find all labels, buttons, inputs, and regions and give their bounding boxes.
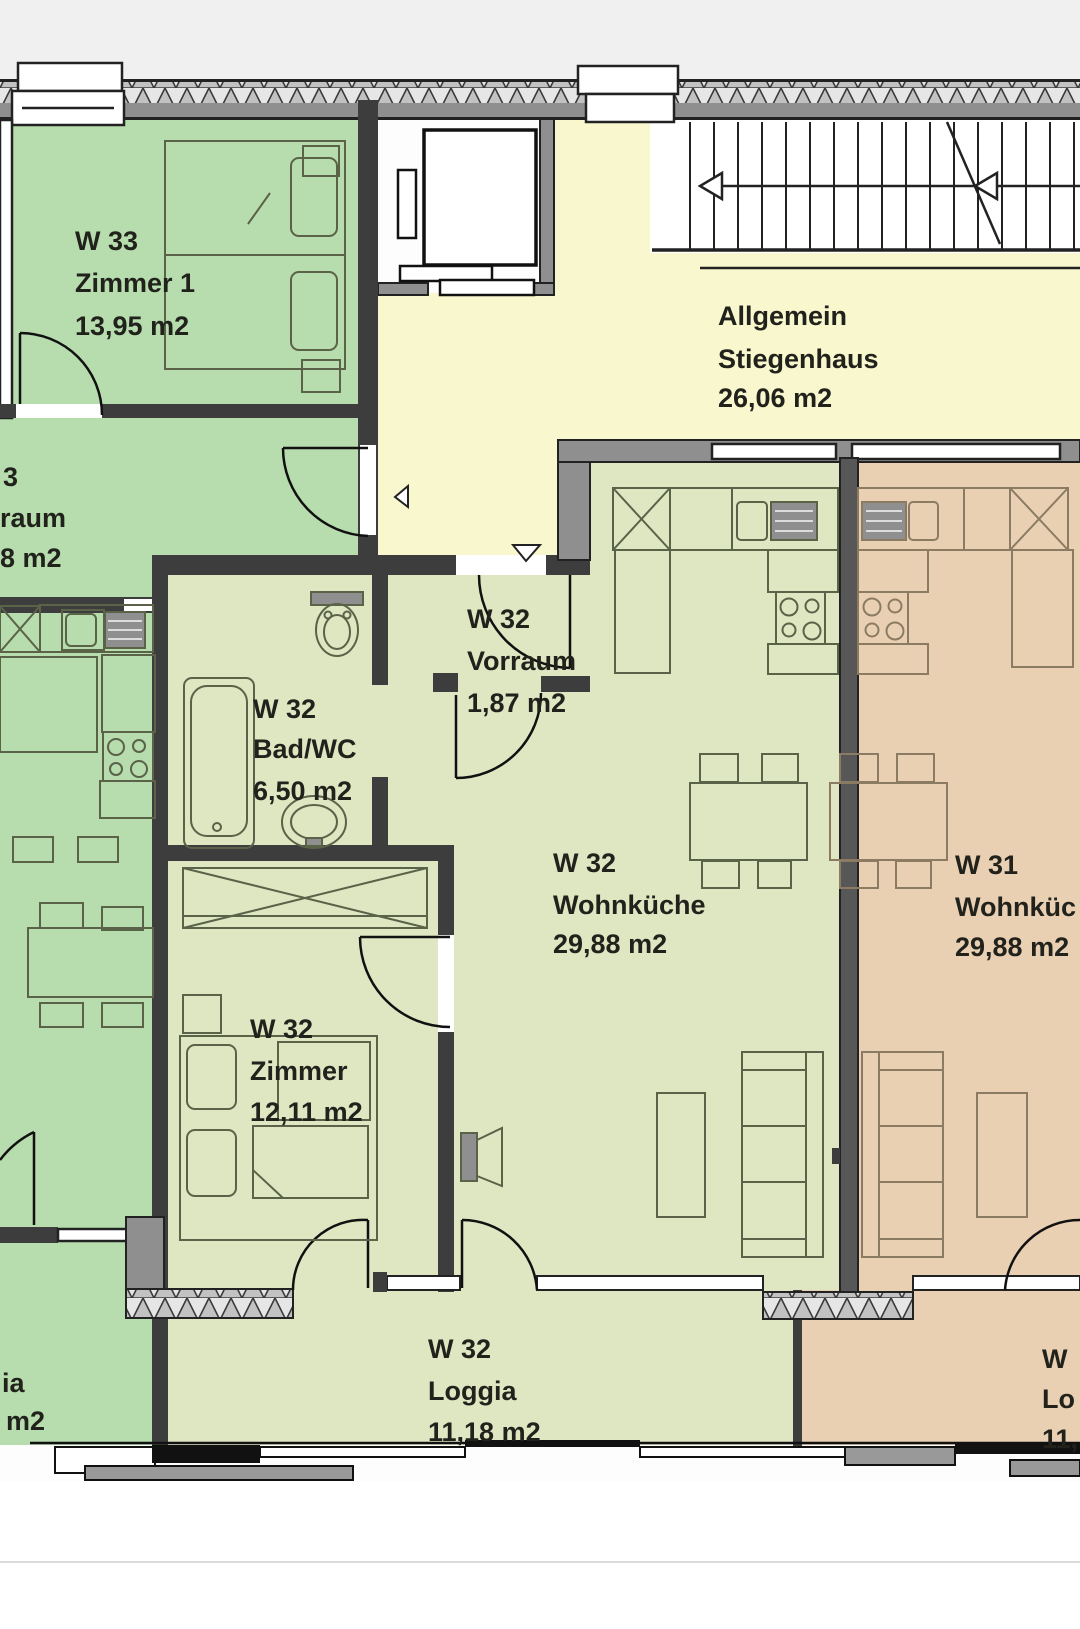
room-area: 1,87 m2 <box>467 688 566 718</box>
door-gap-zimmer1 <box>16 404 102 418</box>
room-name: W <box>1042 1344 1068 1374</box>
room-name: W 32 <box>253 694 316 724</box>
window-above-elevator <box>578 66 678 122</box>
page-margin-bottom <box>0 1482 1080 1629</box>
room-w33-wohnkueche-area <box>0 555 160 1247</box>
room-name: W 32 <box>428 1334 491 1364</box>
room-name: Zimmer 1 <box>75 268 195 298</box>
room-name: Lo <box>1042 1384 1075 1414</box>
room-area: m2 <box>6 1406 45 1436</box>
floorplan-drawing: W 33 Zimmer 1 13,95 m2 Allgemein Stiegen… <box>0 0 1080 1629</box>
room-name: 3 <box>3 462 18 492</box>
room-area: 11,18 m2 <box>428 1417 541 1447</box>
door-gap-w33-entry <box>360 445 376 535</box>
window-w31-kitchen <box>852 444 1060 459</box>
room-stiegenhaus-area-2 <box>378 293 560 563</box>
room-area: 12,11 m2 <box>250 1097 363 1127</box>
room-area: 13,95 m2 <box>75 311 189 341</box>
room-name: W 32 <box>467 604 530 634</box>
window-band-w32a <box>387 1276 460 1290</box>
room-name: Loggia <box>428 1376 517 1406</box>
window-top-left <box>12 63 124 125</box>
window-band-w32b <box>537 1276 763 1290</box>
room-area: 11, <box>1042 1424 1078 1454</box>
window-w32-kitchen <box>712 444 836 459</box>
elevator-car <box>424 130 536 265</box>
room-name: ia <box>2 1368 26 1398</box>
room-name: W 32 <box>553 848 616 878</box>
window-w33-loggia <box>58 1229 128 1241</box>
room-area: 6,50 m2 <box>253 776 352 806</box>
room-w33-vorraum-area <box>0 418 378 560</box>
hatched-wall-loggia-mid <box>763 1292 913 1319</box>
party-wall-w32-w31 <box>840 458 858 1292</box>
room-name: W 31 <box>955 850 1018 880</box>
room-area: 29,88 m2 <box>955 932 1069 962</box>
room-name: W 33 <box>75 226 138 256</box>
window-band-w31 <box>913 1276 1080 1290</box>
loggia-railing <box>30 1440 1080 1480</box>
room-name: Wohnküc <box>955 892 1076 922</box>
room-area: 26,06 m2 <box>718 383 832 413</box>
room-name: W 32 <box>250 1014 313 1044</box>
room-name: Wohnküche <box>553 890 706 920</box>
room-area: 29,88 m2 <box>553 929 667 959</box>
elevator-counterweight <box>398 170 416 238</box>
door-gap-w32-entry <box>456 555 546 575</box>
elevator-door-leaf <box>440 280 534 295</box>
room-name: Zimmer <box>250 1056 348 1086</box>
room-area: 8 m2 <box>0 543 62 573</box>
page-margin-top <box>0 0 1080 80</box>
room-name: Vorraum <box>467 646 576 676</box>
floorplan-page: W 33 Zimmer 1 13,95 m2 Allgemein Stiegen… <box>0 0 1080 1629</box>
hatched-wall-loggia-left <box>126 1289 293 1318</box>
room-w32-kitchen-area <box>587 460 842 1292</box>
room-name: Bad/WC <box>253 734 357 764</box>
room-name: Allgemein <box>718 301 847 331</box>
elevator-icon <box>378 106 554 295</box>
room-name: raum <box>0 503 66 533</box>
room-name: Stiegenhaus <box>718 344 879 374</box>
door-gap-w32-zimmer <box>438 935 454 1032</box>
window-left-edge <box>0 120 12 418</box>
